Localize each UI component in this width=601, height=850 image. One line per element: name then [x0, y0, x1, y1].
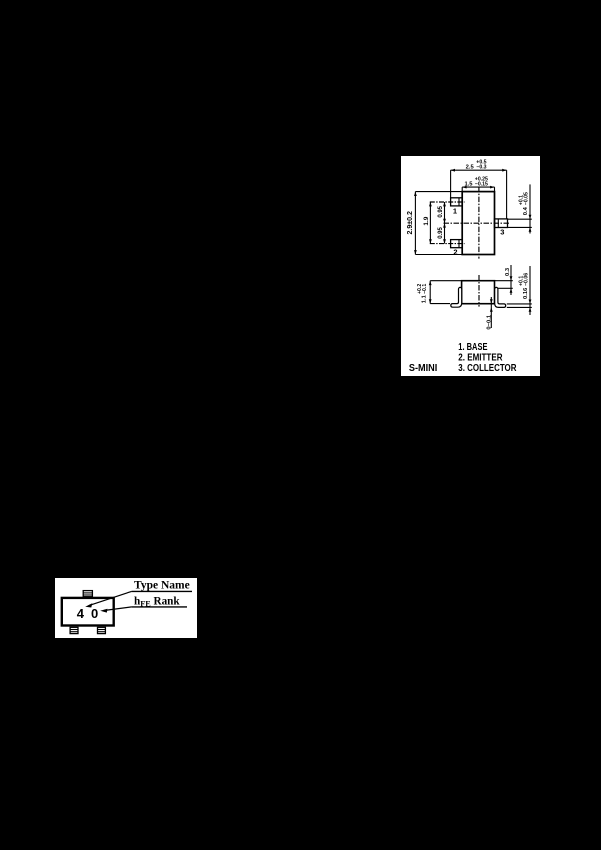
svg-text:−0.06: −0.06 [524, 273, 530, 286]
svg-text:−0.1: −0.1 [422, 284, 428, 294]
svg-text:−0.05: −0.05 [524, 192, 530, 205]
svg-text:3: 3 [500, 228, 504, 237]
svg-text:0.16: 0.16 [523, 287, 529, 299]
svg-text:2.9±0.2: 2.9±0.2 [407, 211, 414, 235]
svg-text:1.1: 1.1 [422, 294, 428, 303]
svg-text:2. EMITTER: 2. EMITTER [458, 352, 502, 363]
svg-text:1: 1 [453, 206, 457, 215]
svg-text:0: 0 [91, 606, 98, 621]
svg-text:1. BASE: 1. BASE [458, 342, 488, 353]
svg-text:−0.15: −0.15 [475, 181, 488, 187]
svg-text:2.5: 2.5 [466, 165, 475, 171]
svg-text:−0.3: −0.3 [476, 165, 486, 171]
svg-text:1.9: 1.9 [423, 216, 430, 225]
svg-text:0~0.1: 0~0.1 [486, 314, 492, 329]
svg-text:Type Name: Type Name [134, 579, 190, 591]
svg-text:1.5: 1.5 [464, 181, 473, 187]
svg-text:4: 4 [77, 606, 85, 621]
svg-text:S-MINI: S-MINI [409, 363, 438, 374]
svg-text:0.95: 0.95 [437, 206, 444, 218]
svg-text:0.3: 0.3 [505, 267, 511, 276]
svg-text:0.4: 0.4 [523, 206, 529, 215]
svg-text:3. COLLECTOR: 3. COLLECTOR [458, 363, 516, 374]
svg-text:0.95: 0.95 [437, 227, 444, 239]
